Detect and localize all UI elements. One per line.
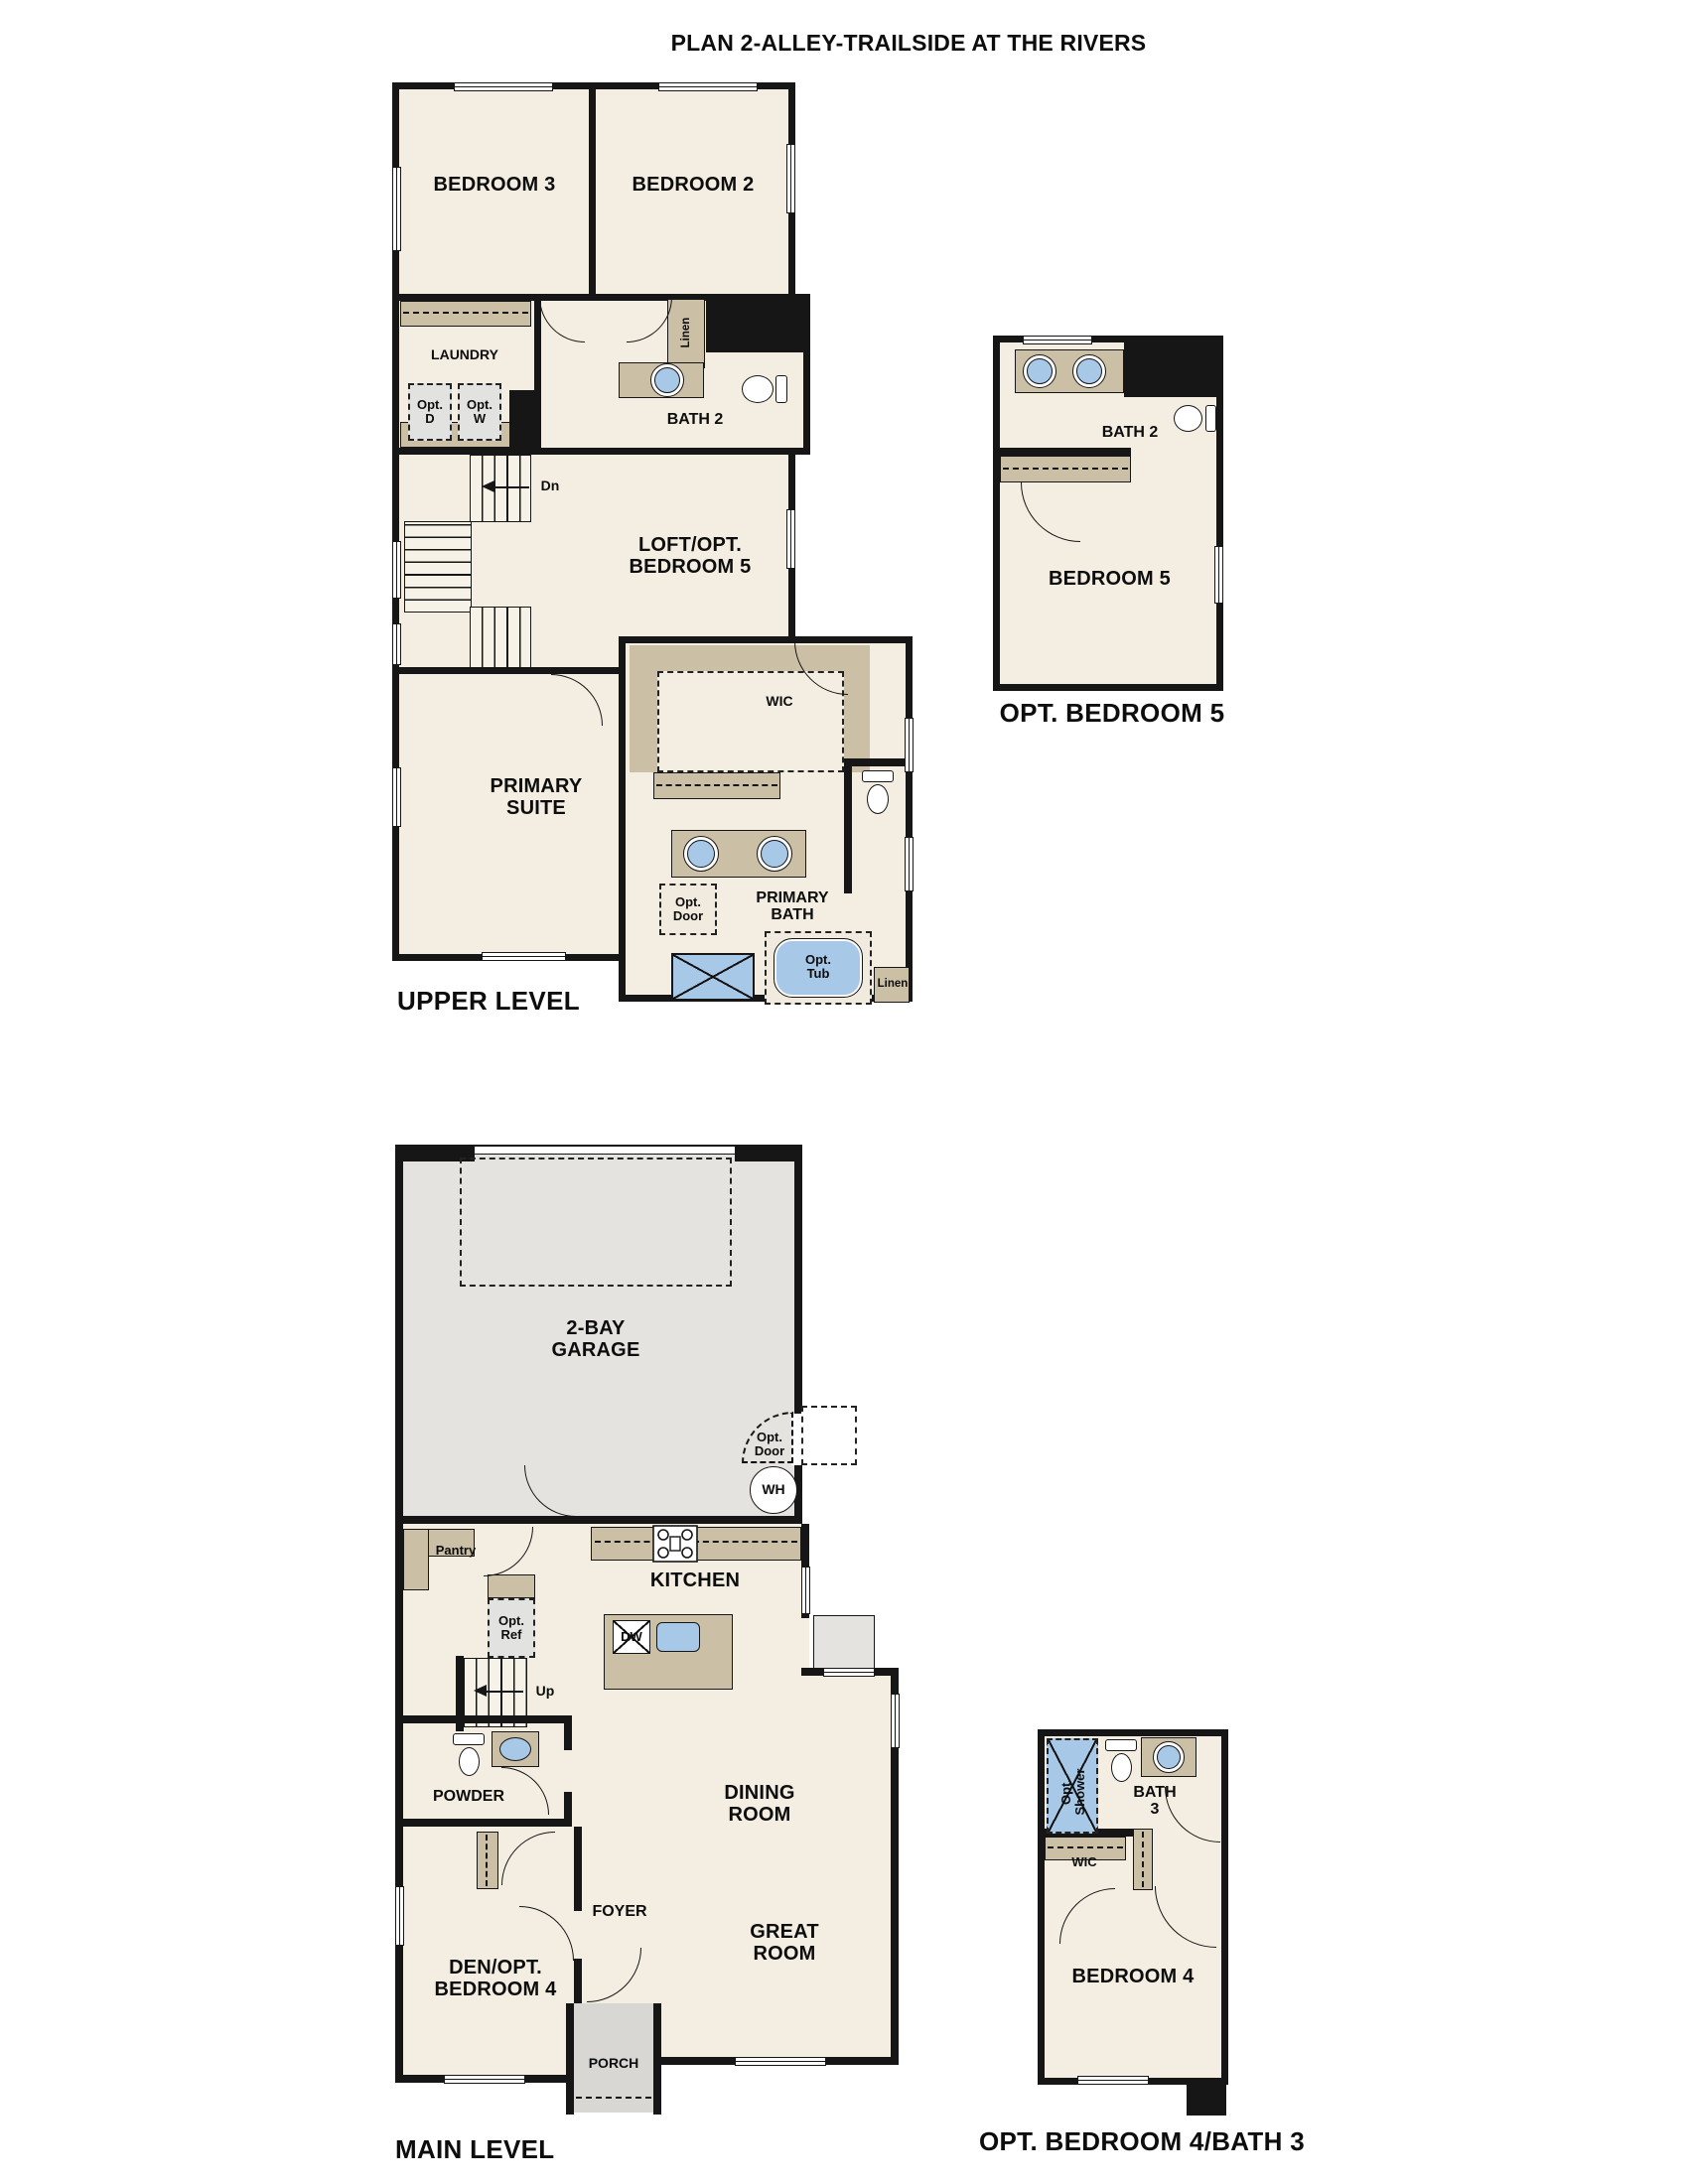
toilet-icon: [742, 374, 787, 406]
window: [1214, 546, 1223, 604]
bathtub-frame: [1124, 340, 1219, 397]
opt-shower-label: Opt. Shower: [1058, 1750, 1088, 1834]
toilet-icon: [1103, 1739, 1141, 1783]
den-label: DEN/OPT. BEDROOM 4: [412, 1956, 579, 2003]
counter: [488, 1574, 535, 1598]
sink-icon: [656, 1622, 700, 1652]
bathtub-frame: [706, 297, 805, 352]
wall: [844, 758, 852, 893]
bath3-label: BATH 3: [1123, 1781, 1187, 1821]
stairs-up-label: Up: [529, 1683, 561, 1701]
linen-label: Linen: [678, 295, 694, 370]
garage-label: 2-BAY GARAGE: [496, 1315, 695, 1365]
wall: [564, 1792, 572, 1827]
linen-label: Linen: [872, 976, 914, 992]
opt-dryer-box: Opt. D: [408, 383, 452, 441]
window: [395, 1886, 404, 1946]
opt-door-label: Opt. Door: [742, 1428, 797, 1461]
dishwasher-icon: DW: [613, 1620, 650, 1654]
opt-washer-box: Opt. W: [458, 383, 501, 441]
dining-room-label: DINING ROOM: [705, 1782, 814, 1828]
porch-edge-dash: [576, 2097, 651, 2099]
sheet-title: PLAN 2-ALLEY-TRAILSIDE AT THE RIVERS: [129, 30, 1688, 57]
kitchen-label: KITCHEN: [631, 1570, 760, 1592]
sink-icon: [757, 836, 792, 872]
garage-door: [475, 1146, 735, 1155]
range-icon: [652, 1525, 698, 1563]
wall: [395, 1516, 802, 1524]
wic-floor: [657, 671, 844, 772]
primary-bath-label: PRIMARY BATH: [723, 887, 862, 925]
window: [1077, 2076, 1149, 2085]
wic-label: WIC: [735, 693, 824, 711]
window: [454, 82, 553, 91]
wall: [395, 1524, 403, 2083]
sink-icon: [1072, 354, 1106, 388]
toilet-icon: [860, 770, 898, 816]
window: [482, 952, 566, 961]
opt-door-zone: [801, 1406, 857, 1465]
wall: [1187, 2078, 1226, 2116]
stairs: [470, 607, 531, 668]
opt-door-zone: Opt. Door: [659, 884, 717, 935]
window: [1023, 336, 1092, 344]
opt-bedroom4-plan: Opt. Shower BATH 3 WIC BEDROOM 4: [1038, 1729, 1241, 2126]
foyer-label: FOYER: [576, 1902, 663, 1922]
opt-tub-label: Opt. Tub: [782, 949, 854, 985]
window: [658, 82, 758, 91]
wall: [653, 2003, 661, 2115]
powder-label: POWDER: [414, 1787, 523, 1807]
wall: [735, 1145, 802, 1161]
great-room-label: GREAT ROOM: [730, 1921, 839, 1967]
wall: [509, 390, 534, 455]
laundry-label: LAUNDRY: [400, 346, 529, 364]
window: [786, 144, 795, 213]
opt-fridge-box: Opt. Ref: [488, 1598, 535, 1658]
up-arrow-icon: [484, 1691, 523, 1693]
window: [735, 2057, 826, 2066]
stairs-down-label: Dn: [533, 478, 567, 495]
window: [392, 623, 401, 665]
wall: [1000, 448, 1131, 456]
shower-icon: [671, 953, 755, 1001]
opt-bedroom4-caption: OPT. BEDROOM 4/BATH 3: [943, 2126, 1340, 2157]
bath2-label: BATH 2: [1080, 423, 1180, 443]
loft-label: LOFT/OPT. BEDROOM 5: [586, 531, 794, 583]
closet-shelf: [1000, 456, 1131, 482]
stairs: [404, 521, 472, 613]
wall: [395, 1819, 572, 1827]
sink-icon: [499, 1737, 531, 1761]
stoop: [813, 1615, 875, 1671]
opt-bedroom5-caption: OPT. BEDROOM 5: [993, 698, 1231, 729]
pantry-label: Pantry: [422, 1543, 490, 1559]
wall: [564, 1715, 572, 1750]
bedroom4-label: BEDROOM 4: [1054, 1966, 1212, 1989]
main-level-caption: MAIN LEVEL: [395, 2134, 554, 2165]
pantry-shelf: [403, 1529, 429, 1590]
main-level-plan: 2-BAY GARAGE Opt. Door WH Pantry KITCHEN…: [392, 1142, 914, 2134]
window: [444, 2075, 525, 2084]
bedroom5-label: BEDROOM 5: [1028, 568, 1192, 592]
opt-bedroom5-plan: BATH 2 BEDROOM 5: [993, 336, 1236, 752]
laundry-closet-shelf: [400, 301, 531, 327]
upper-level-caption: UPPER LEVEL: [397, 986, 580, 1017]
wall: [566, 2003, 574, 2115]
sink-icon: [683, 836, 719, 872]
wall: [574, 1827, 582, 1911]
water-heater-icon: WH: [750, 1466, 797, 1514]
window: [801, 1567, 810, 1614]
bedroom3-label: BEDROOM 3: [410, 174, 579, 198]
room-primary-bath: WIC PRIMARY BATH Opt. Door Opt. Tub Line…: [619, 636, 913, 1002]
window: [392, 167, 401, 251]
window: [392, 767, 401, 827]
floorplan-sheet: { "title": "PLAN 2-ALLEY-TRAILSIDE AT TH…: [0, 0, 1688, 2184]
window: [905, 837, 914, 891]
den-closet-shelf: [477, 1832, 498, 1889]
window: [392, 541, 401, 599]
window: [891, 1694, 900, 1748]
toilet-icon: [450, 1733, 490, 1777]
wic-shelf: [653, 772, 780, 799]
down-arrow-icon: [492, 486, 529, 488]
upper-level-plan: BEDROOM 3 BEDROOM 2 LAUNDRY Opt. D Opt. …: [392, 82, 918, 1021]
primary-suite-label: PRIMARY SUITE: [447, 772, 626, 824]
wic-label: WIC: [1054, 1854, 1115, 1870]
toilet-icon: [1174, 405, 1217, 435]
bedroom2-label: BEDROOM 2: [609, 174, 777, 198]
window: [905, 718, 914, 772]
garage-bay-outline: [460, 1158, 732, 1287]
bath2-label: BATH 2: [640, 410, 750, 430]
wall: [844, 758, 906, 766]
window: [823, 1668, 875, 1677]
sink-icon: [1153, 1741, 1185, 1773]
wall: [395, 1715, 572, 1723]
sink-icon: [1023, 354, 1056, 388]
wic-wall-shelf: [1133, 1829, 1153, 1890]
porch-label: PORCH: [576, 2055, 651, 2073]
